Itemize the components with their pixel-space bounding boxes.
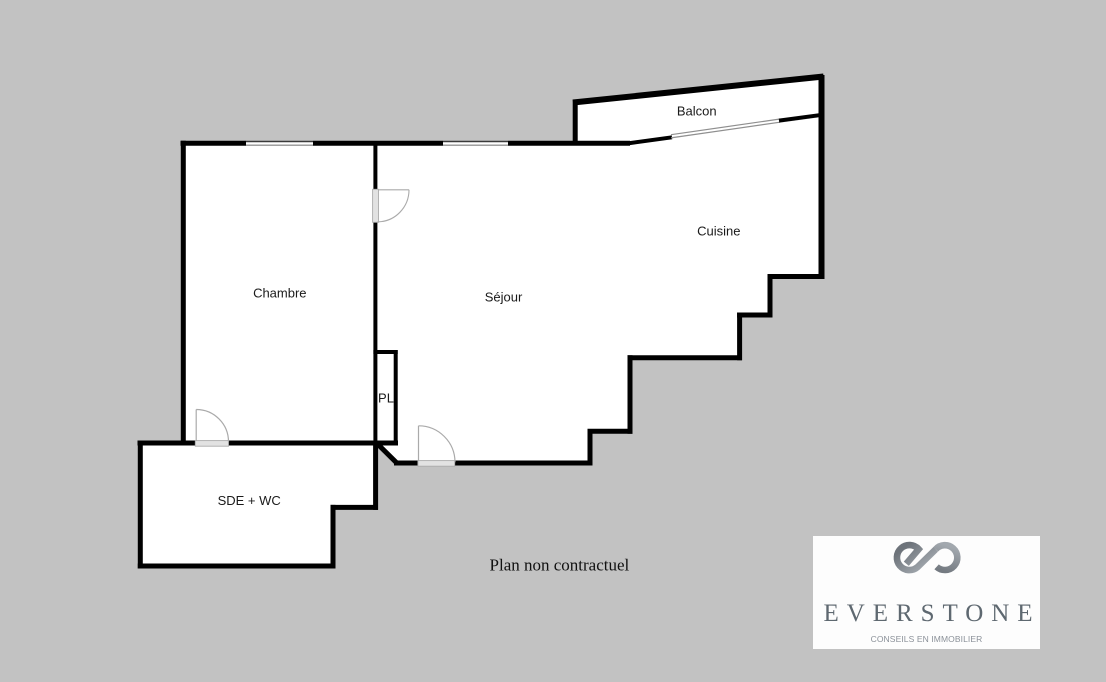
svg-text:EVERSTONE: EVERSTONE [824, 600, 1041, 627]
svg-text:PL: PL [378, 391, 394, 406]
svg-text:Chambre: Chambre [253, 285, 306, 300]
svg-text:SDE + WC: SDE + WC [218, 493, 281, 508]
svg-text:Séjour: Séjour [485, 289, 523, 304]
svg-text:Balcon: Balcon [677, 104, 717, 119]
svg-text:Cuisine: Cuisine [697, 224, 740, 239]
svg-text:Plan non contractuel: Plan non contractuel [490, 555, 630, 574]
svg-text:CONSEILS EN IMMOBILIER: CONSEILS EN IMMOBILIER [871, 634, 983, 644]
